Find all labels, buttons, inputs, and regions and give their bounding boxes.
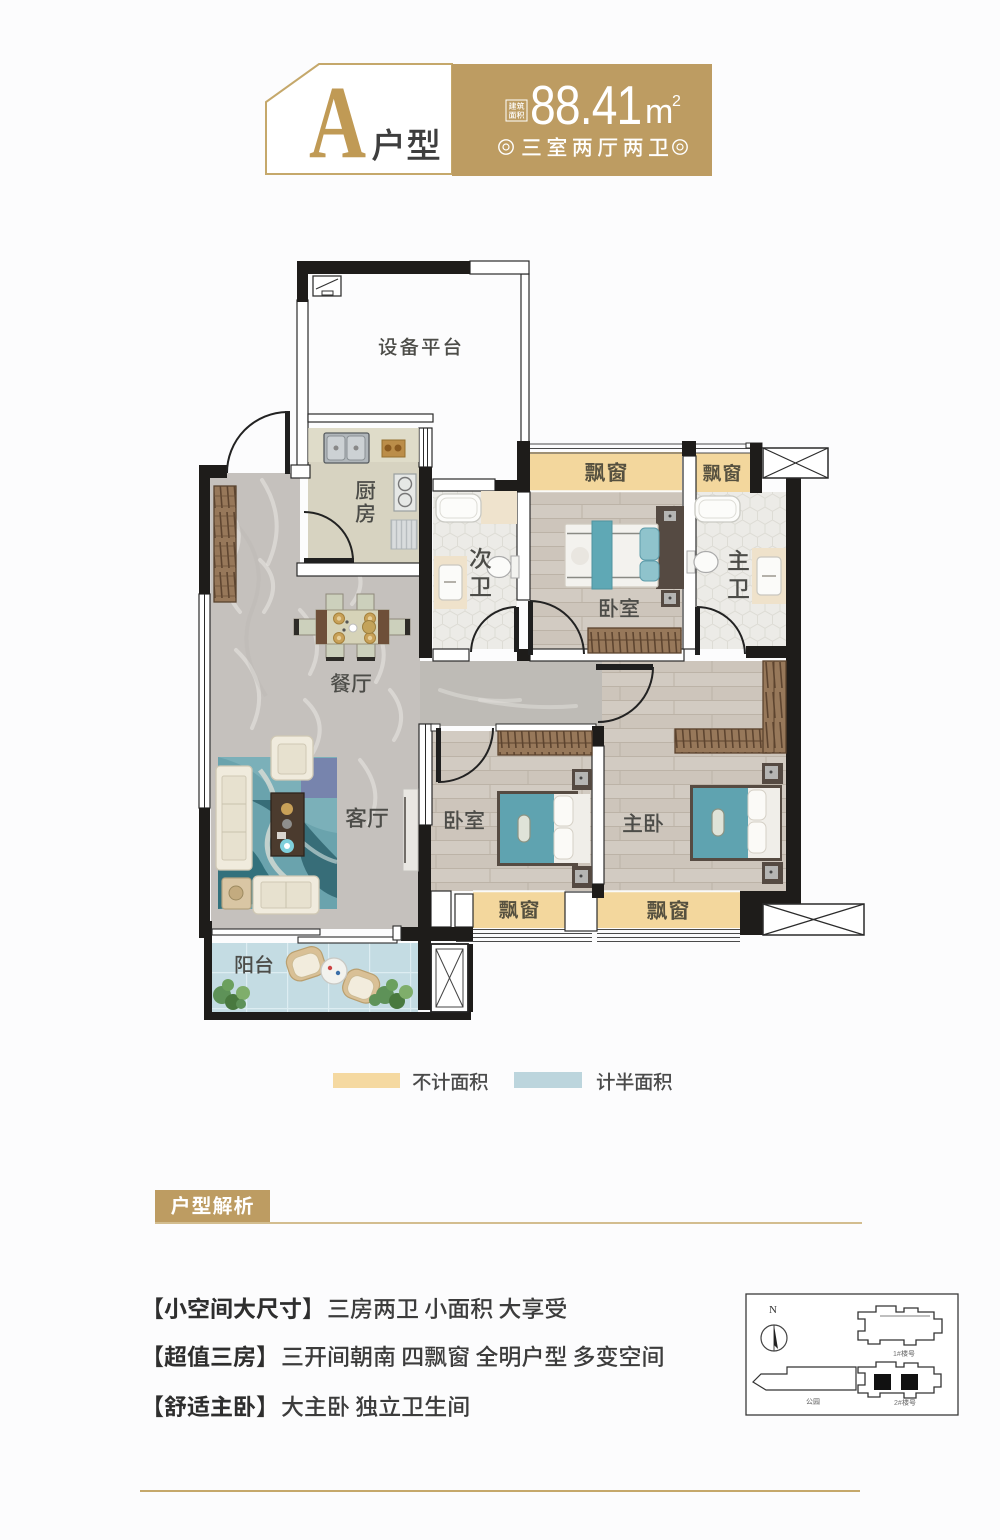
svg-text:2#: 2# — [894, 1400, 902, 1407]
svg-text:88.41: 88.41 — [530, 74, 641, 136]
svg-text:N: N — [769, 1304, 777, 1316]
svg-text:m: m — [645, 93, 673, 131]
svg-text:A: A — [309, 65, 366, 180]
svg-text:1#: 1# — [893, 1351, 901, 1358]
svg-text:2: 2 — [672, 93, 681, 110]
